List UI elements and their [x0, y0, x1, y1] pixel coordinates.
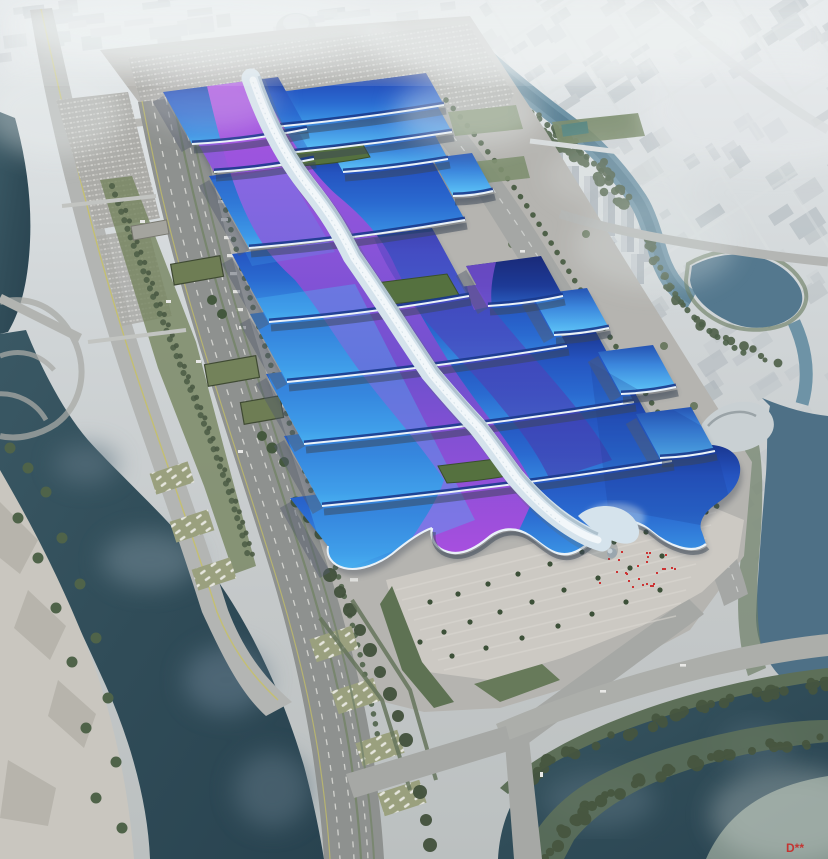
svg-text:D**: D** [786, 841, 804, 855]
